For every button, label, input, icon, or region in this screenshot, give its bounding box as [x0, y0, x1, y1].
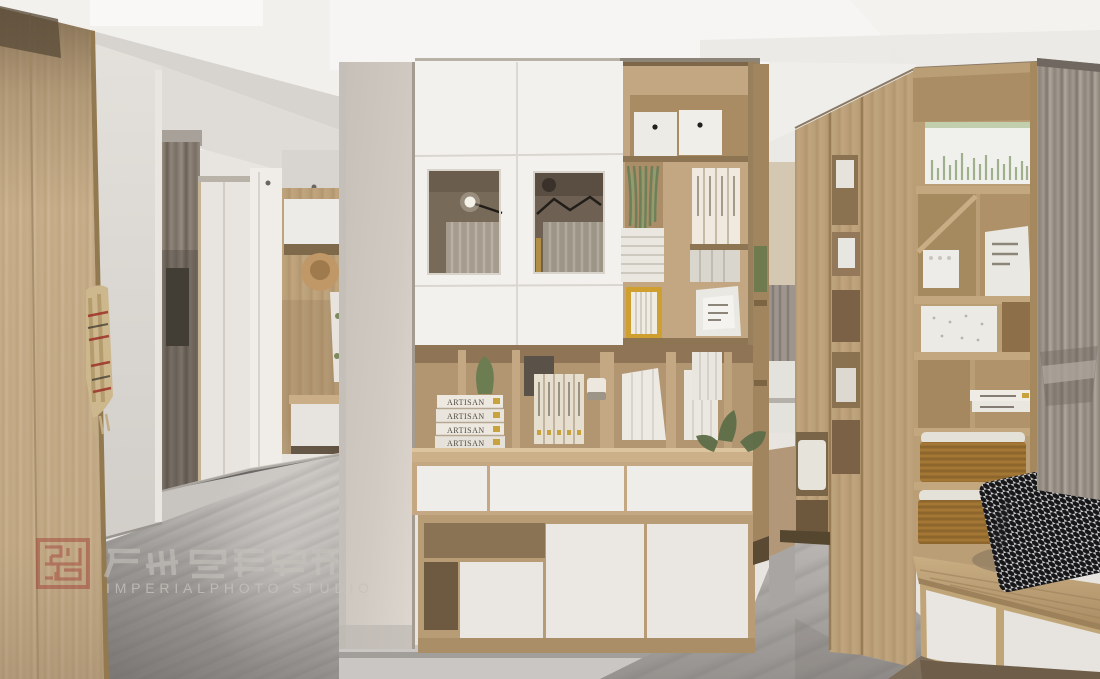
svg-text:ARTISAN: ARTISAN — [447, 412, 485, 421]
svg-text:ARTISAN: ARTISAN — [447, 426, 485, 435]
svg-text:ARTISAN: ARTISAN — [447, 439, 485, 448]
svg-text:IMPERIALPHOTO STUDIO: IMPERIALPHOTO STUDIO — [106, 580, 374, 596]
svg-text:ARTISAN: ARTISAN — [447, 398, 485, 407]
